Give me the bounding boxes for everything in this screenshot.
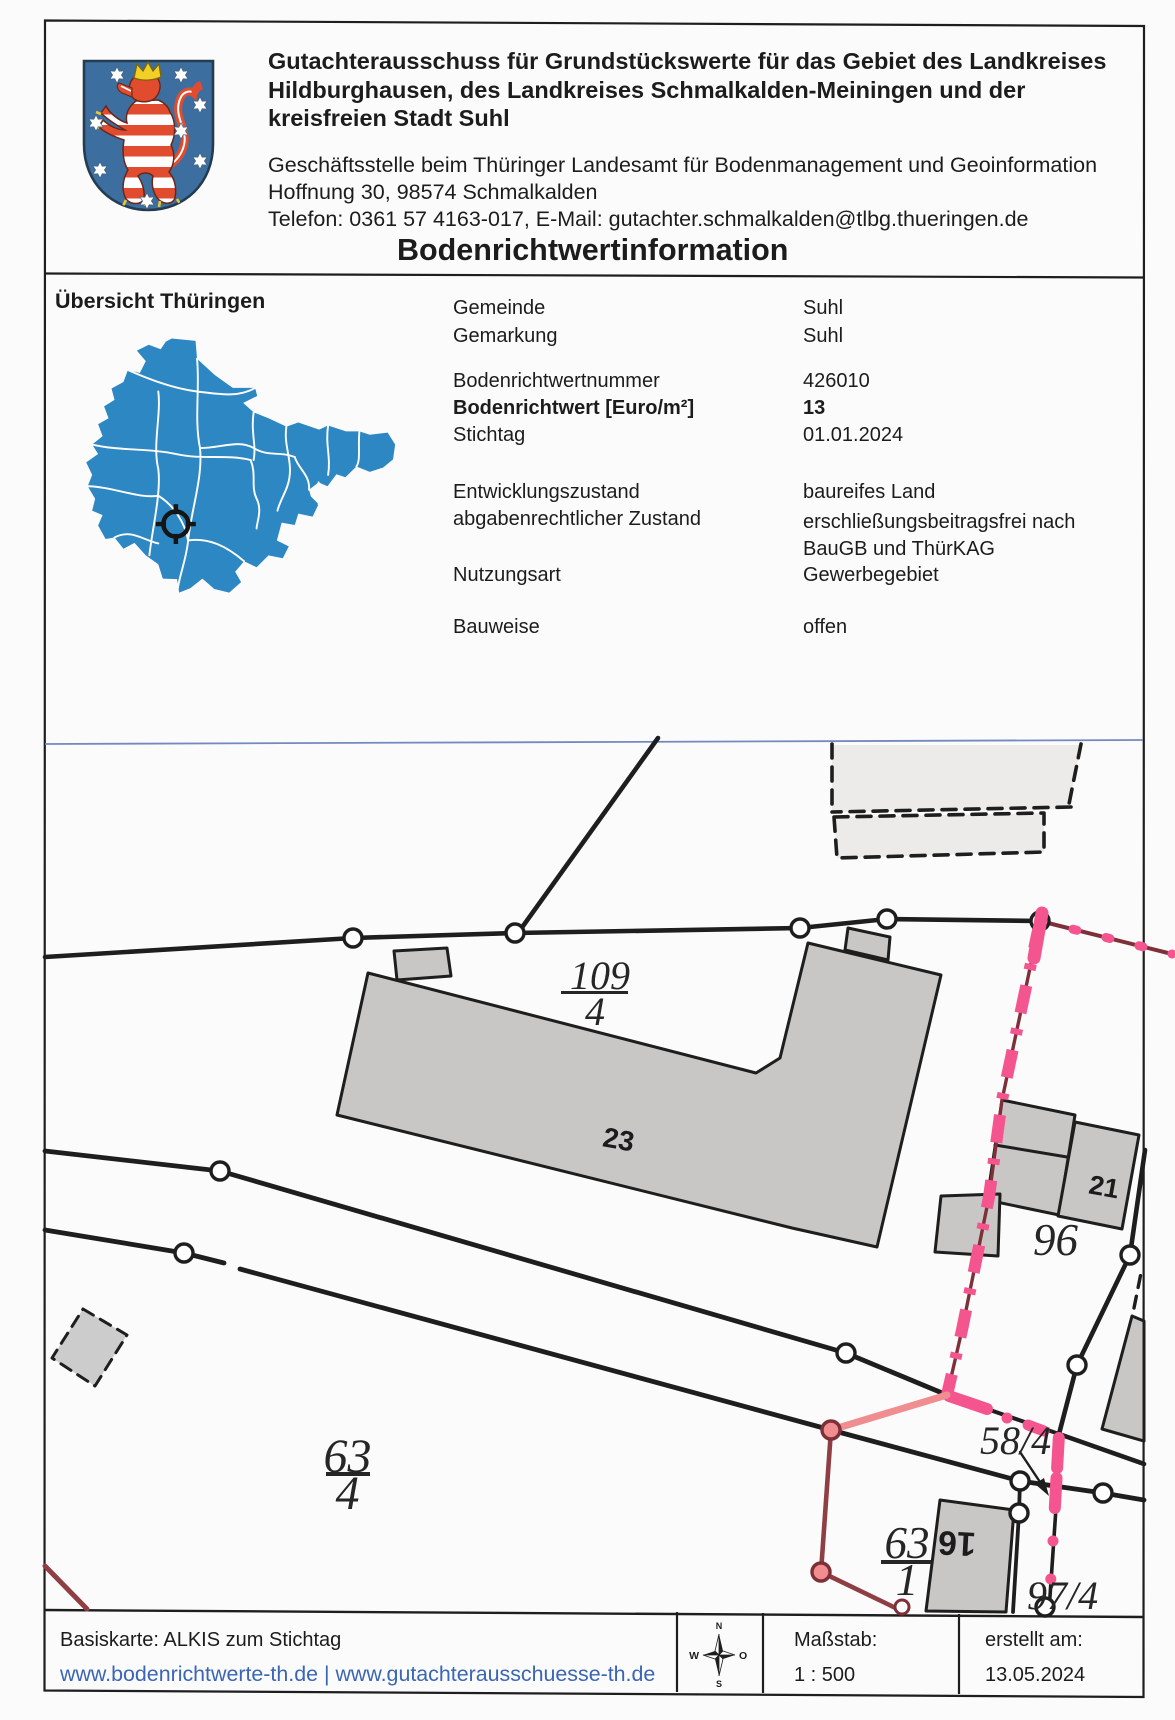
svg-text:W: W bbox=[689, 1650, 699, 1662]
svg-text:S: S bbox=[716, 1679, 722, 1689]
svg-text:N: N bbox=[716, 1621, 723, 1631]
svg-text:O: O bbox=[739, 1650, 747, 1662]
